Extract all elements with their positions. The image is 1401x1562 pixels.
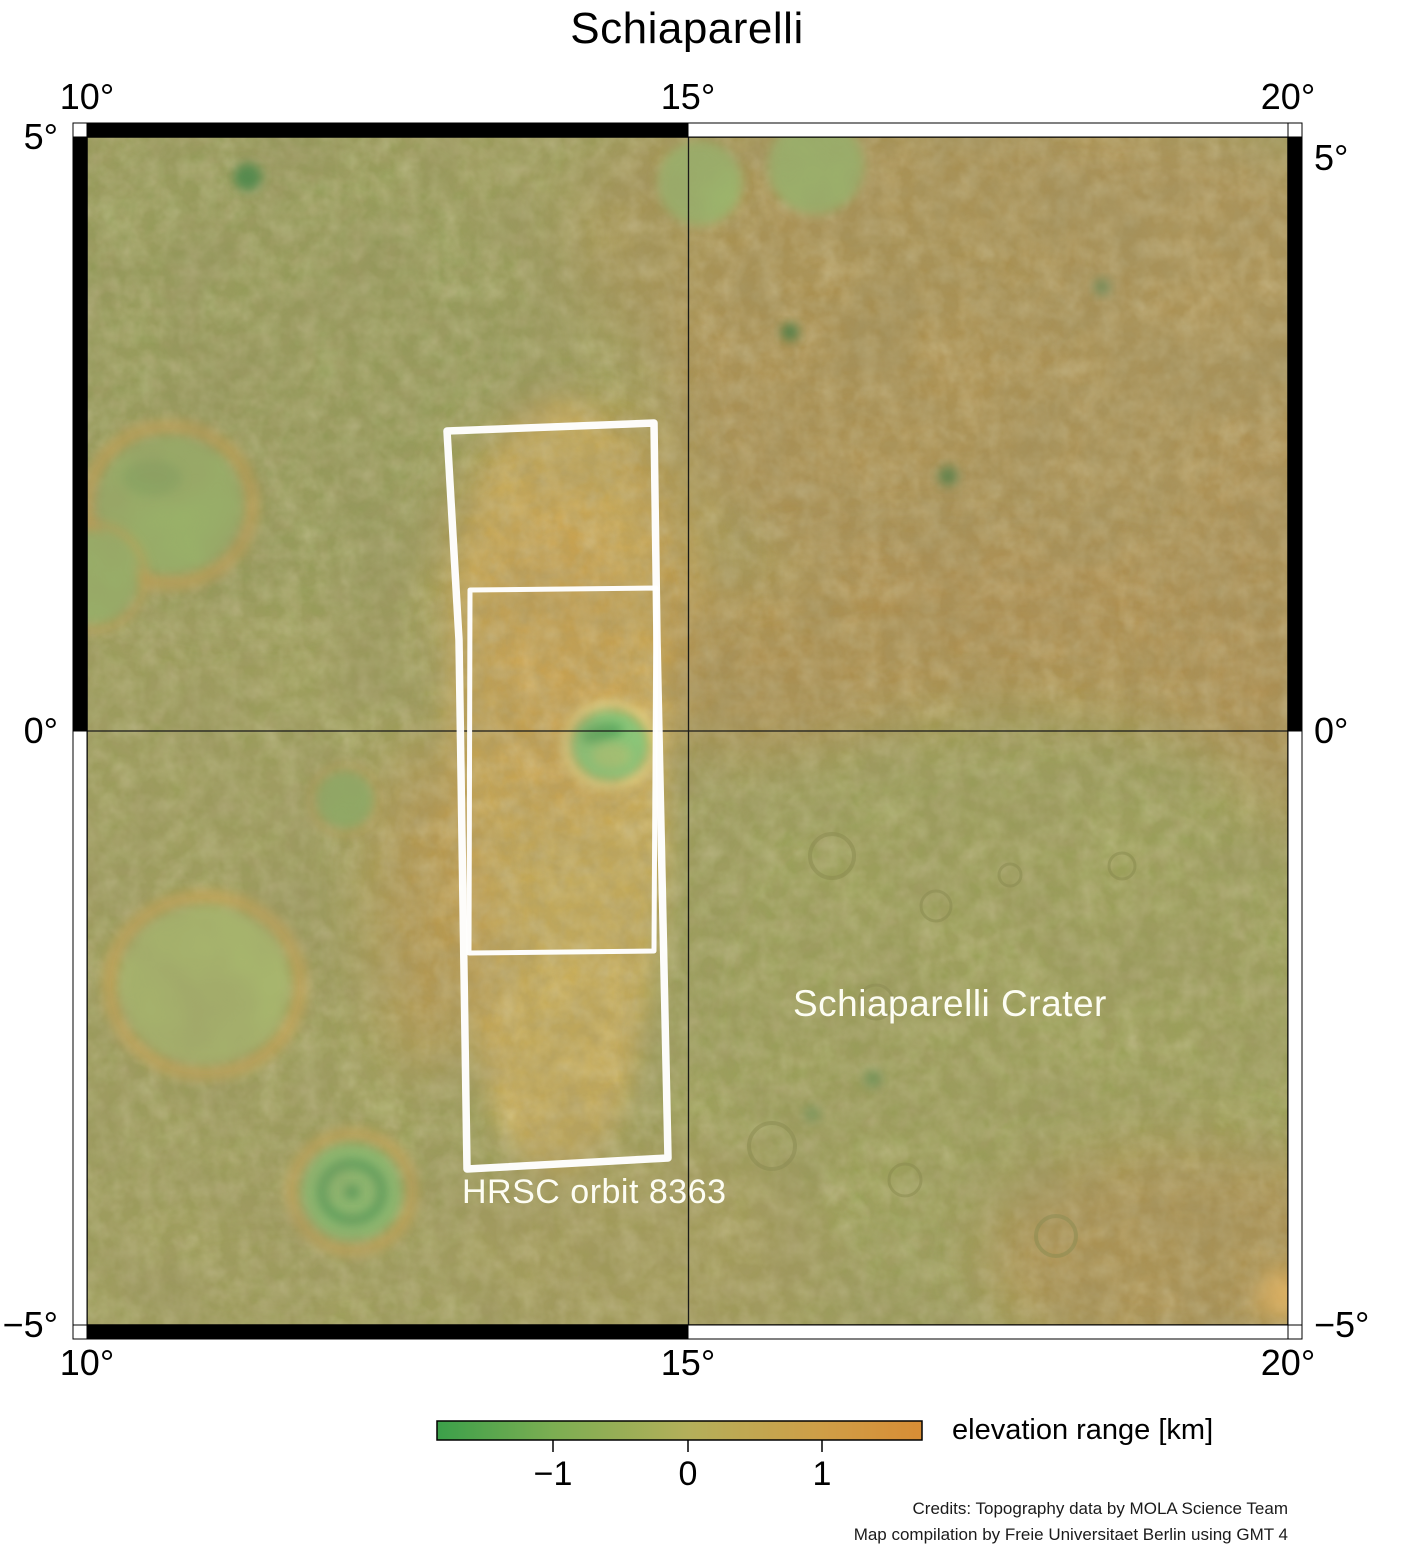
axis-label-left-0: 0°	[0, 710, 58, 752]
axis-label-bottom-10: 10°	[60, 1342, 114, 1384]
axis-label-left-5: 5°	[0, 116, 58, 158]
figure-title: Schiaparelli	[570, 4, 803, 54]
colorbar-tick-label-0: 0	[679, 1455, 698, 1494]
map-figure: Schiaparelli 10° 15° 20° 10° 15° 20° 5° …	[0, 0, 1401, 1562]
axis-label-right-5: 5°	[1314, 137, 1348, 179]
frame-corner	[1288, 1325, 1302, 1339]
credits: Credits: Topography data by MOLA Science…	[854, 1496, 1288, 1548]
frame-band-right-black	[1288, 137, 1302, 731]
axis-label-top-10: 10°	[60, 76, 114, 118]
axis-label-top-15: 15°	[661, 76, 715, 118]
axis-label-right-0: 0°	[1314, 710, 1348, 752]
axis-label-left-minus5: −5°	[0, 1304, 58, 1346]
frame-corner	[73, 123, 87, 137]
credits-line-2: Map compilation by Freie Universitaet Be…	[854, 1522, 1288, 1548]
colorbar	[437, 1421, 922, 1452]
frame-band-top-white	[688, 123, 1288, 137]
frame-corner	[73, 1325, 87, 1339]
axis-label-bottom-15: 15°	[661, 1342, 715, 1384]
orbit-footprint-label: HRSC orbit 8363	[462, 1173, 727, 1212]
frame-band-right-white	[1288, 731, 1302, 1325]
colorbar-tick-label-minus1: −1	[534, 1455, 573, 1494]
credits-line-1: Credits: Topography data by MOLA Science…	[854, 1496, 1288, 1522]
crater-name-label: Schiaparelli Crater	[793, 983, 1107, 1025]
colorbar-tick-label-1: 1	[813, 1455, 832, 1494]
map-canvas	[0, 0, 1401, 1562]
colorbar-gradient	[437, 1421, 922, 1440]
frame-band-top-black	[87, 123, 688, 137]
axis-label-bottom-20: 20°	[1261, 1342, 1315, 1384]
colorbar-title: elevation range [km]	[952, 1412, 1213, 1448]
frame-band-bottom-white	[688, 1325, 1288, 1339]
frame-band-left-black	[73, 137, 87, 731]
axis-label-top-20: 20°	[1261, 76, 1315, 118]
frame-band-left-white	[73, 731, 87, 1325]
frame-corner	[1288, 123, 1302, 137]
axis-label-right-minus5: −5°	[1314, 1304, 1369, 1346]
frame-band-bottom-black	[87, 1325, 688, 1339]
